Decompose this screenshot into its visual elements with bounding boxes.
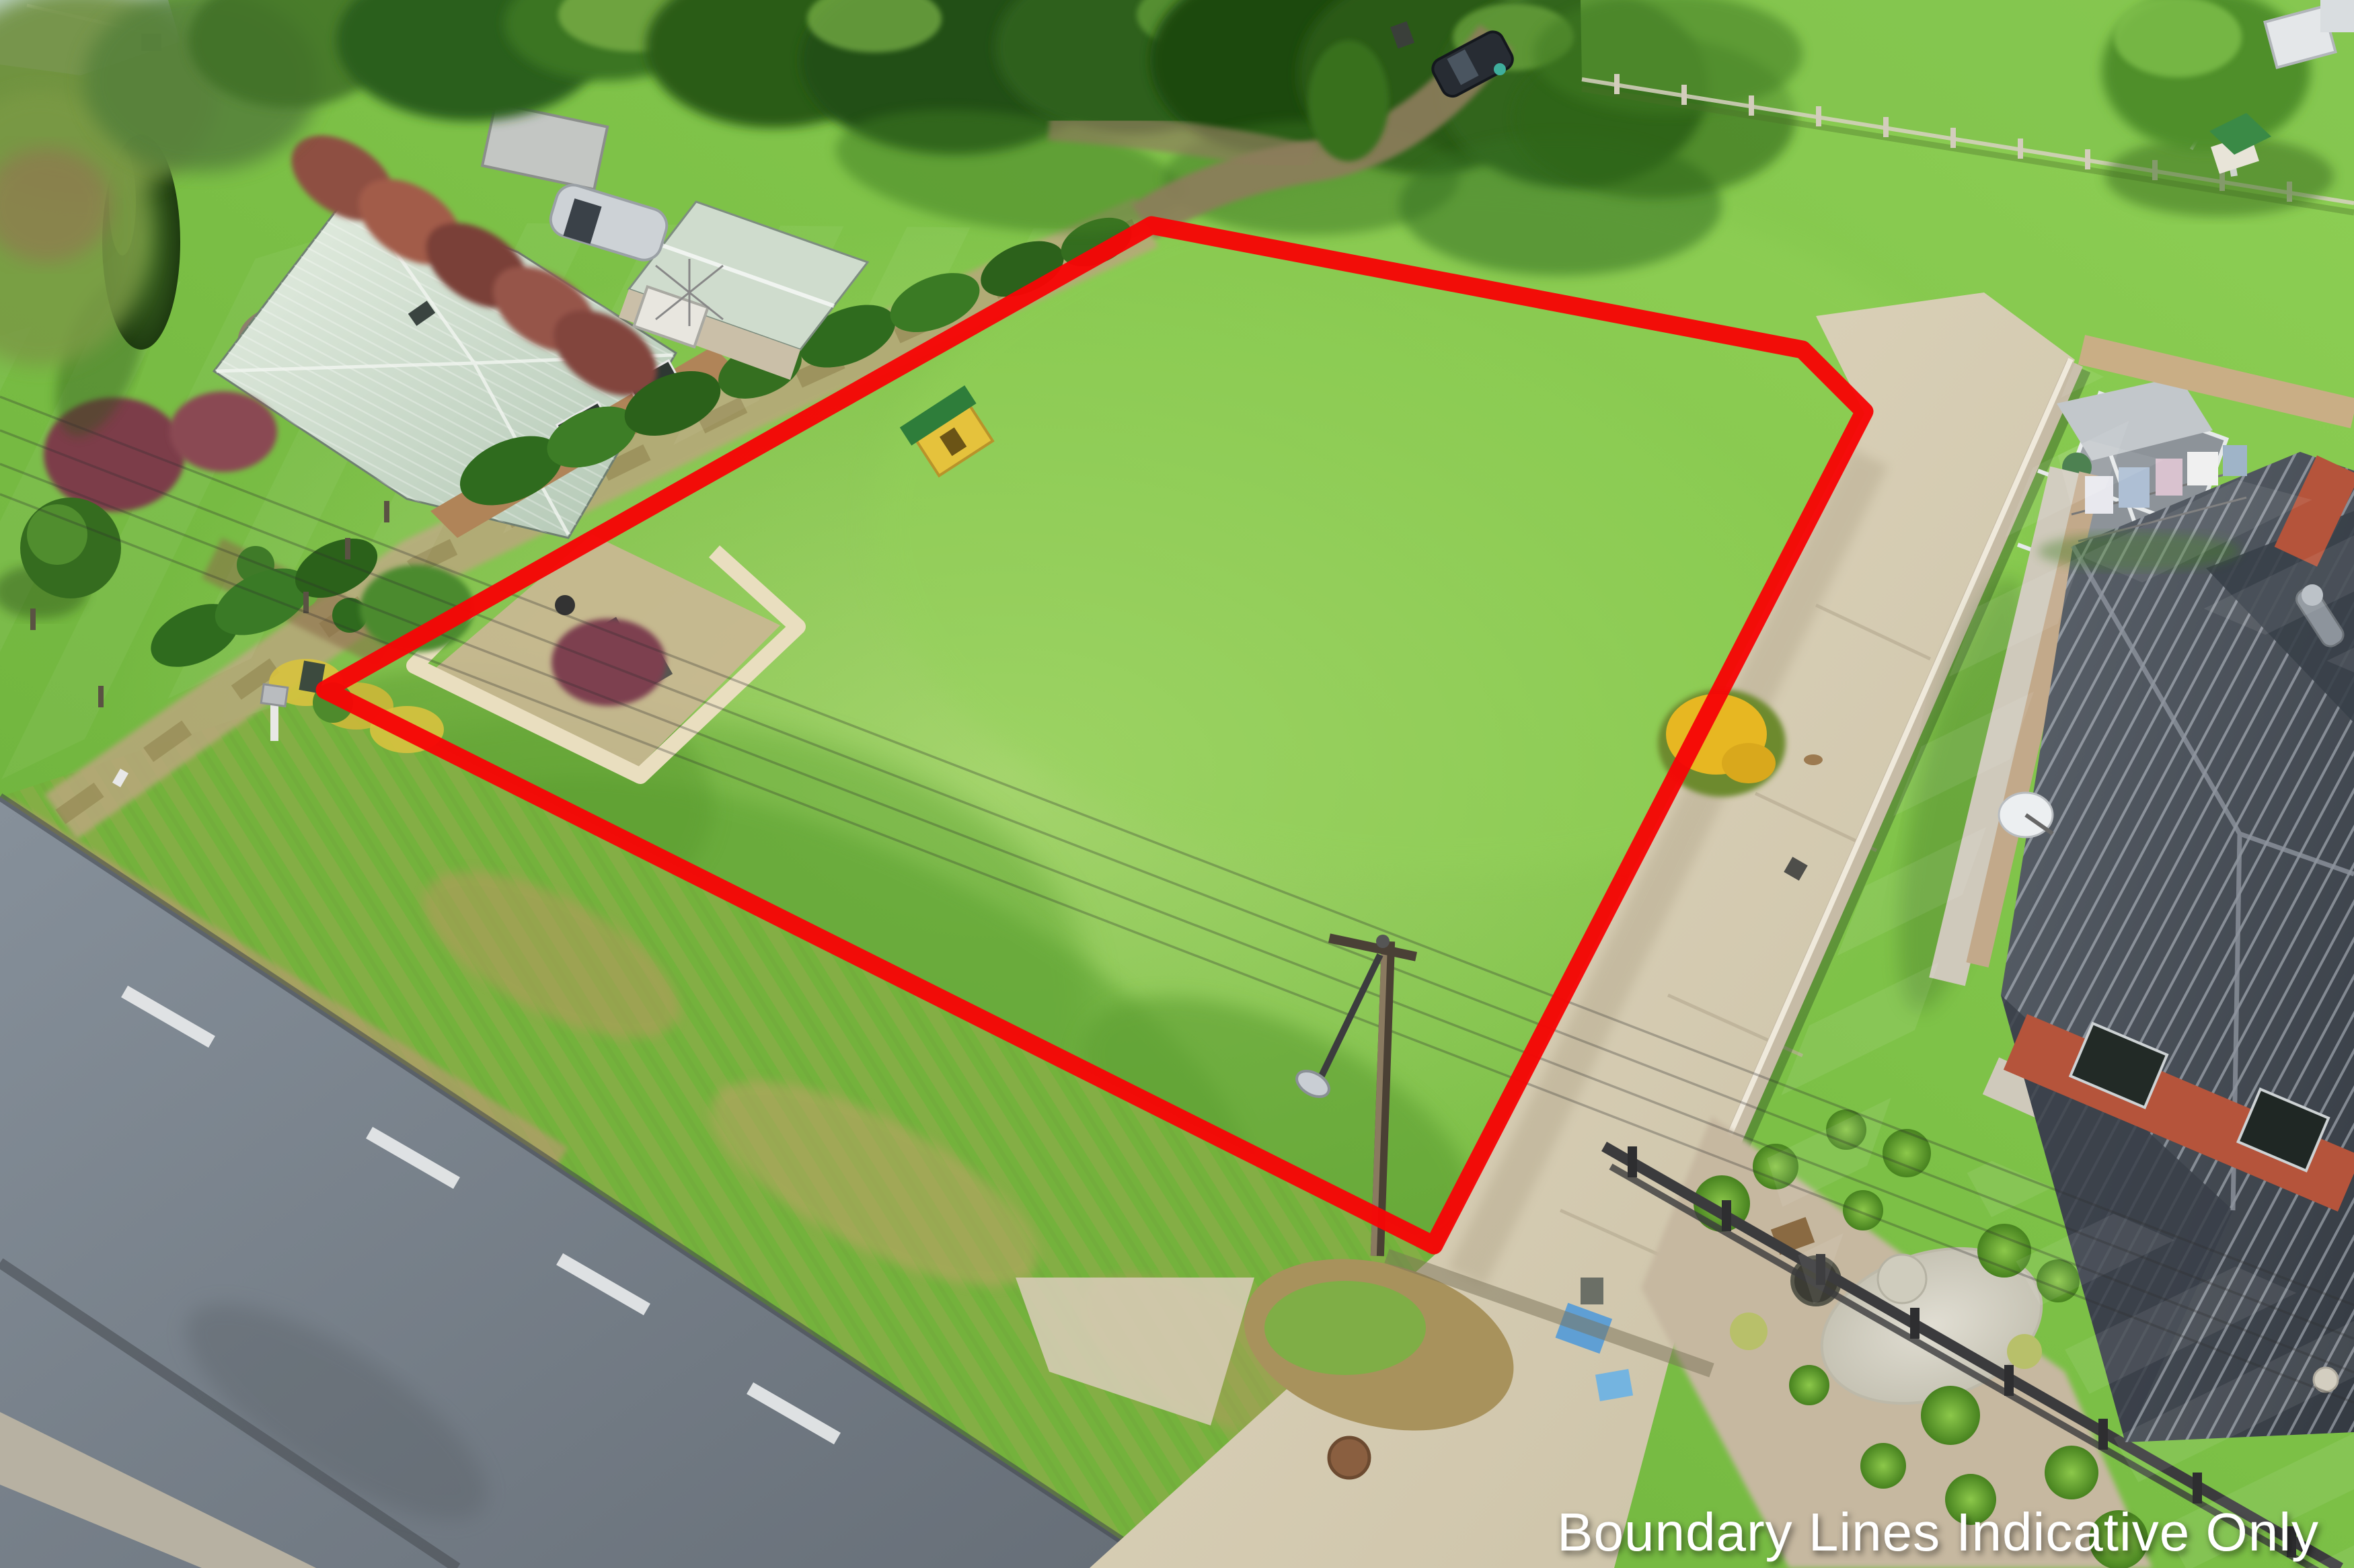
fence-post <box>1910 1308 1920 1339</box>
birch-canopy-highlight <box>2114 0 2242 77</box>
gorse-flowers <box>1722 743 1776 783</box>
laundry <box>2223 445 2247 476</box>
dry-tussock <box>2007 1334 2042 1369</box>
utility-box <box>1581 1278 1603 1304</box>
blue-toy <box>1595 1369 1633 1401</box>
fence-post <box>98 686 104 707</box>
drive-stain <box>1804 754 1823 765</box>
dry-tussock <box>1730 1312 1768 1350</box>
manhole-cover <box>1329 1438 1369 1478</box>
tussock <box>1860 1443 1906 1489</box>
fence-post <box>1816 106 1821 126</box>
fence-post <box>2004 1365 2014 1396</box>
fence-post <box>1681 85 1687 105</box>
fence-post <box>1950 128 1956 148</box>
tank-lid <box>1878 1255 1926 1303</box>
fence-post <box>1749 95 1754 116</box>
aerial-photo-canvas: Boundary Lines Indicative Only <box>0 0 2354 1568</box>
person-teal <box>1494 63 1506 75</box>
tussock <box>1883 1129 1931 1177</box>
fence-post <box>384 501 389 522</box>
fence-post <box>2018 139 2023 159</box>
fence-post <box>303 592 309 613</box>
maple-bush <box>169 391 277 472</box>
tussock <box>2045 1446 2098 1499</box>
fence-post <box>1722 1200 1731 1231</box>
fence-post <box>1614 74 1620 94</box>
tussock <box>1921 1386 1980 1445</box>
fence-post <box>345 538 350 559</box>
fence-post <box>1883 117 1889 137</box>
fence-post <box>2085 149 2090 169</box>
fence-post <box>30 609 36 630</box>
rough-island-grass <box>1264 1281 1426 1375</box>
disclaimer-text: Boundary Lines Indicative Only <box>1557 1502 2319 1562</box>
mailbox <box>261 684 288 707</box>
pole-cap <box>1376 935 1390 948</box>
aerial-photo: Boundary Lines Indicative Only <box>0 0 2354 1568</box>
round-tree-highlight <box>27 504 87 565</box>
fence-post <box>1628 1146 1637 1177</box>
cabbage-tree <box>1308 40 1389 161</box>
white-structure <box>2320 0 2354 32</box>
tussock <box>1789 1365 1829 1405</box>
